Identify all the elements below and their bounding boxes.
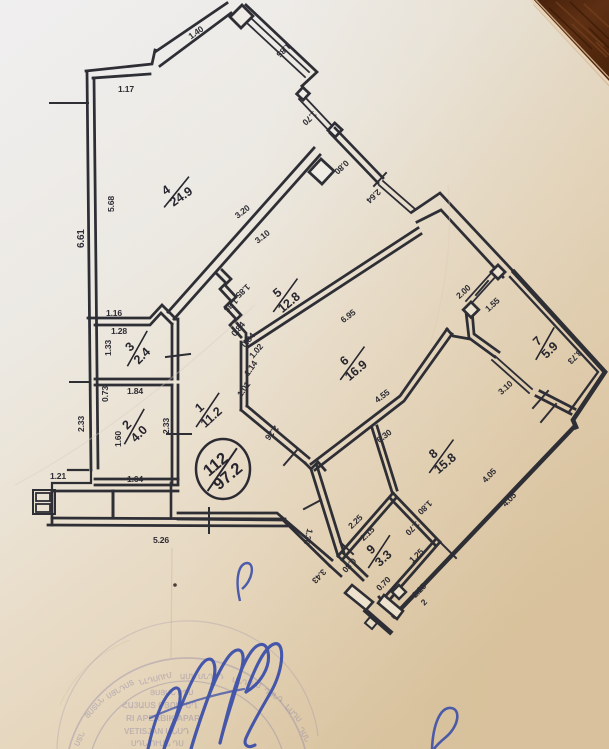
svg-text:ՍԴՆ ՈՒՄՆ ԴՍ: ՍԴՆ ՈՒՄՆ ԴՍ	[131, 739, 184, 748]
svg-text:1.16: 1.16	[106, 308, 122, 318]
svg-text:5.26: 5.26	[153, 535, 169, 545]
svg-text:RI APERBIK APAR: RI APERBIK APAR	[126, 713, 200, 723]
svg-text:0.73: 0.73	[100, 386, 110, 402]
svg-text:1.17: 1.17	[118, 84, 134, 94]
svg-text:1.28: 1.28	[111, 326, 127, 336]
svg-text:2.33: 2.33	[161, 418, 171, 434]
svg-text:VETISJAN ԱՆՍԴ: VETISJAN ԱՆՍԴ	[124, 727, 189, 736]
svg-text:1.84: 1.84	[127, 386, 143, 396]
svg-text:6.61: 6.61	[76, 229, 87, 248]
svg-text:5.68: 5.68	[106, 196, 116, 212]
svg-text:1.33: 1.33	[103, 340, 113, 356]
svg-text:1.60: 1.60	[113, 431, 123, 447]
svg-text:2.33: 2.33	[76, 416, 86, 432]
svg-text:1.21: 1.21	[50, 471, 66, 481]
svg-text:1.64: 1.64	[127, 474, 143, 484]
